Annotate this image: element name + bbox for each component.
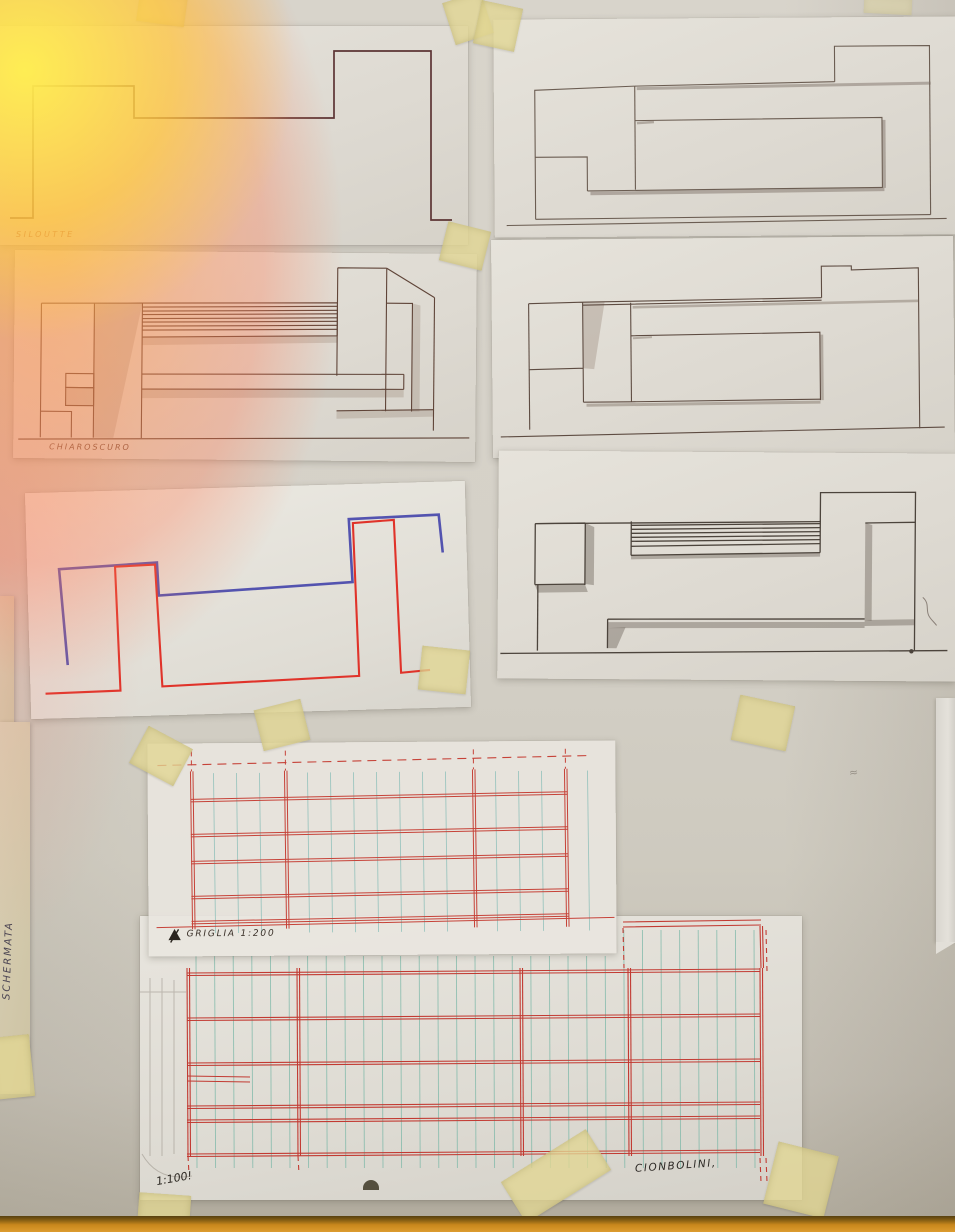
pencil-marks	[140, 978, 192, 1177]
pin-mark	[363, 1180, 379, 1190]
tape-piece	[136, 0, 188, 27]
sheet-elevation-lower-right	[497, 450, 955, 681]
tape-piece	[864, 0, 913, 15]
griglia-label: GRIGLIA 1:200	[187, 929, 276, 940]
grid-drawing	[147, 740, 616, 956]
sheet-elevation-top-right	[493, 16, 955, 237]
wood-ledge	[0, 1216, 955, 1232]
sheet-chiaroscuro: CHIAROSCURO	[13, 250, 477, 462]
elevation-shaded-drawing-1	[493, 16, 955, 237]
sheet-red-blue-profiles	[25, 481, 471, 719]
tape-piece	[731, 695, 795, 752]
sheet-silhouette: SILOUTTE	[0, 26, 468, 245]
paper-edge-right	[936, 698, 955, 942]
silhouette-label: SILOUTTE	[16, 230, 75, 239]
elevation-shaded-drawing-2	[491, 236, 955, 458]
tape-piece	[473, 0, 523, 52]
pencil-tick: ≈	[848, 765, 859, 779]
red-blue-profile-drawing	[25, 481, 471, 719]
red-profile-line	[41, 519, 430, 694]
sheet-griglia: GRIGLIA 1:200	[147, 740, 616, 956]
photo-scene: SCHERMATA ≈ SILOUTTE	[0, 0, 955, 1232]
silhouette-outline-drawing	[0, 26, 468, 245]
elevation-shaded-drawing-3	[497, 450, 955, 681]
griglia-marker-icon	[170, 929, 180, 942]
schermata-label: SCHERMATA	[1, 850, 17, 1000]
tape-piece	[418, 646, 470, 695]
sheet-ciondolini-grid: 1:100! CIONBOLINI,	[140, 916, 802, 1200]
chiaroscuro-label: CHIAROSCURO	[49, 442, 131, 452]
chiaroscuro-drawing	[13, 250, 477, 462]
sheet-elevation-middle-right	[491, 236, 955, 458]
